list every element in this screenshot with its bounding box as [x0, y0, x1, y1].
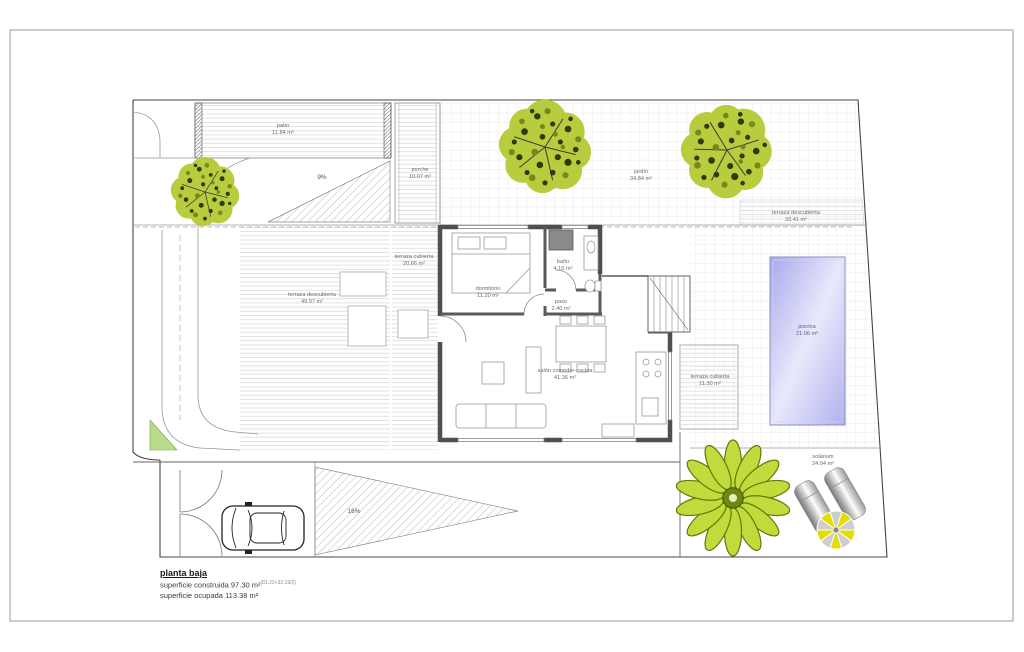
parking-zone [133, 432, 680, 557]
svg-text:terraza cubierta: terraza cubierta [395, 254, 435, 260]
dining-table [556, 326, 606, 362]
svg-text:41.36 m²: 41.36 m² [554, 375, 576, 381]
drawing-sheet: patio 11.84 m² porche 10.07 m² terraza d… [0, 0, 1024, 652]
svg-text:jardín: jardín [633, 169, 648, 175]
svg-text:11.30 m²: 11.30 m² [699, 381, 721, 387]
stairs [648, 276, 690, 332]
svg-text:34.84 m²: 34.84 m² [630, 176, 652, 182]
car [222, 502, 304, 554]
kitchen-appliance [602, 424, 634, 437]
svg-text:10.07 m²: 10.07 m² [409, 174, 431, 180]
coffee-table [482, 362, 504, 384]
title-block: planta baja superficie construida 97.30 … [160, 567, 296, 602]
svg-text:2.40 m²: 2.40 m² [552, 306, 571, 312]
svg-text:solárium: solárium [812, 454, 833, 460]
svg-text:terraza descubierta: terraza descubierta [288, 292, 337, 298]
svg-text:terraza cubierta: terraza cubierta [691, 374, 731, 380]
label-bano: baño 4.15 m² [554, 259, 573, 272]
wardrobe [549, 230, 573, 250]
ramp-9 [268, 161, 390, 222]
label-piscina: piscina 21.06 m² [796, 324, 818, 337]
plan-title: planta baja [160, 567, 296, 580]
slope-annotation-top: 9% [317, 174, 327, 181]
svg-text:21.06 m²: 21.06 m² [796, 331, 818, 337]
svg-text:4.15 m²: 4.15 m² [554, 266, 573, 272]
svg-text:11.84 m²: 11.84 m² [272, 130, 294, 136]
svg-text:11.20 m²: 11.20 m² [477, 293, 499, 299]
svg-text:salón comedor-cocina: salón comedor-cocina [538, 368, 594, 374]
slope-annotation-bottom: 16% [348, 508, 361, 515]
label-paso: paso 2.40 m² [552, 299, 571, 312]
sofa [456, 404, 546, 428]
svg-text:33.41 m²: 33.41 m² [785, 217, 807, 223]
occupied-area-row: superficie ocupada 113.38 m² [160, 591, 296, 602]
built-area-row: superficie construida 97.30 m²(81.22+32.… [160, 580, 296, 591]
floorplan-canvas: patio 11.84 m² porche 10.07 m² terraza d… [0, 0, 1024, 652]
palm-tree [675, 440, 792, 556]
ramp-16 [315, 467, 518, 555]
built-area-note: (81.22+32.19/2) [261, 580, 296, 586]
svg-text:patio: patio [277, 123, 289, 129]
label-dormitorio: dormitorio 11.20 m² [476, 286, 501, 299]
label-porche: porche 10.07 m² [409, 167, 431, 180]
toilet [585, 280, 595, 292]
pool [770, 257, 845, 425]
svg-text:49.97 m²: 49.97 m² [301, 299, 323, 305]
svg-text:piscina: piscina [798, 324, 816, 330]
gate-leaves [180, 470, 222, 556]
outdoor-sofa [340, 272, 386, 296]
grass-corner [150, 420, 177, 450]
label-solarium: solárium 24.04 m² [812, 454, 834, 467]
svg-text:terraza descubierta: terraza descubierta [772, 210, 821, 216]
svg-text:paso: paso [555, 299, 567, 305]
svg-text:20.66 m²: 20.66 m² [403, 261, 425, 267]
svg-text:dormitorio: dormitorio [476, 286, 501, 292]
svg-text:baño: baño [557, 259, 569, 265]
label-salon: salón comedor-cocina 41.36 m² [538, 368, 594, 381]
svg-text:porche: porche [411, 167, 428, 173]
svg-text:24.04 m²: 24.04 m² [812, 461, 834, 467]
